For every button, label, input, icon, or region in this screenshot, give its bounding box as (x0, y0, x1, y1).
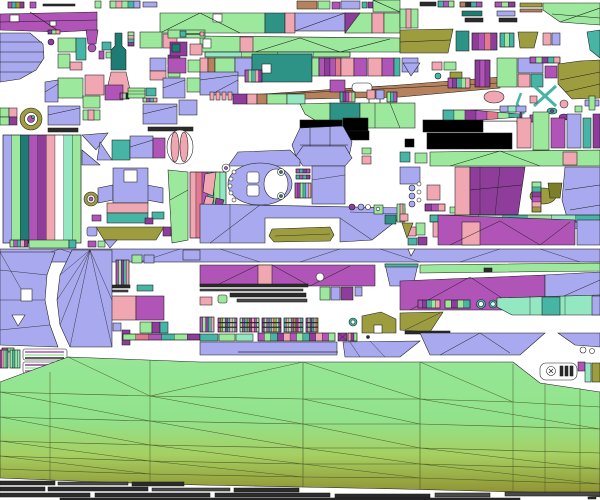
uv-island (88, 44, 96, 52)
uv-island (367, 336, 370, 339)
uv-stripe (235, 318, 237, 332)
uv-stripe (308, 183, 311, 198)
uv-stripe (425, 204, 432, 211)
uv-island (152, 322, 160, 333)
uv-stripe (16, 2, 20, 8)
uv-island (140, 32, 162, 48)
uv-stripe (495, 2, 502, 7)
uv-island (148, 127, 193, 131)
uv-stripe (10, 240, 14, 247)
uv-stripe (307, 175, 311, 179)
uv-island (110, 296, 136, 320)
uv-island (200, 284, 308, 287)
uv-island (0, 481, 55, 485)
uv-stripe (445, 300, 451, 308)
uv-stripe (46, 135, 55, 243)
uv-island (228, 184, 232, 188)
uv-island (30, 2, 36, 8)
uv-stripe (20, 135, 29, 243)
uv-island (341, 1, 360, 9)
uv-island (578, 362, 585, 371)
uv-island (354, 58, 367, 76)
uv-island (83, 96, 100, 108)
uv-island (113, 323, 121, 331)
uv-island (107, 213, 148, 223)
uv-stripe (291, 318, 293, 332)
uv-island (132, 255, 142, 263)
uv-island (406, 9, 411, 28)
uv-island (112, 140, 130, 160)
uv-island (58, 482, 128, 485)
uv-stripe (15, 350, 18, 368)
uv-island (499, 18, 517, 22)
uv-island (409, 201, 415, 207)
uv-island (367, 90, 375, 99)
uv-stripe (134, 1, 140, 8)
uv-stripe (119, 260, 122, 285)
uv-stripe (476, 110, 487, 121)
uv-island (358, 204, 364, 210)
uv-stripe (149, 334, 162, 340)
uv-island (497, 11, 515, 16)
uv-island (218, 295, 227, 303)
uv-stripe (136, 334, 149, 340)
uv-stripe (242, 318, 244, 332)
uv-canvas (0, 0, 600, 500)
uv-island (520, 9, 542, 12)
uv-stripe (461, 78, 465, 88)
uv-island (200, 265, 375, 286)
uv-stripe (464, 300, 470, 308)
uv-stripe (418, 300, 422, 308)
uv-island (48, 487, 148, 491)
uv-island (222, 92, 226, 100)
uv-island (355, 287, 362, 296)
uv-stripe (316, 318, 318, 332)
uv-island (230, 293, 306, 297)
uv-island (530, 96, 537, 103)
uv-island (236, 334, 253, 341)
uv-stripe (232, 318, 234, 332)
uv-island (200, 297, 212, 305)
uv-island (171, 132, 179, 162)
uv-stripe (122, 1, 128, 8)
uv-island (88, 241, 96, 247)
uv-stripe (14, 240, 18, 247)
uv-island (592, 296, 600, 315)
uv-stripe (336, 58, 342, 76)
uv-stripe (128, 1, 134, 8)
uv-island (484, 91, 504, 103)
uv-island (560, 366, 563, 376)
uv-island (462, 11, 482, 16)
uv-stripe (205, 52, 241, 57)
uv-stripe (211, 317, 214, 332)
uv-stripe (267, 318, 269, 332)
uv-island (518, 74, 530, 87)
uv-island (589, 96, 595, 110)
uv-island (409, 193, 415, 199)
uv-island (585, 363, 591, 382)
uv-stripe (438, 204, 445, 211)
uv-island (455, 167, 470, 217)
uv-island (146, 88, 156, 96)
uv-island (583, 118, 591, 148)
uv-stripe (530, 57, 536, 63)
uv-island (508, 106, 516, 112)
uv-stripe (124, 260, 127, 285)
uv-island (343, 118, 368, 131)
uv-stripe (276, 318, 278, 332)
uv-stripe (390, 92, 393, 102)
uv-island (86, 30, 98, 44)
uv-stripe (478, 33, 484, 50)
uv-stripe (502, 2, 509, 7)
uv-island (48, 128, 78, 132)
uv-island (567, 114, 581, 148)
uv-stripe (17, 240, 21, 247)
uv-stripe (264, 333, 270, 341)
uv-island (351, 320, 355, 324)
uv-stripe (322, 333, 328, 341)
uv-island (296, 146, 352, 166)
uv-stripe (509, 33, 514, 47)
uv-stripe (352, 92, 355, 102)
uv-stripe (120, 93, 123, 99)
uv-island (362, 2, 367, 8)
uv-island (432, 62, 442, 70)
uv-stripe (466, 2, 472, 7)
uv-island (219, 334, 235, 341)
uv-stripe (508, 2, 515, 7)
uv-stripe (314, 318, 316, 332)
uv-stripe (208, 317, 211, 332)
uv-island (384, 13, 400, 33)
uv-stripe (472, 33, 478, 50)
uv-island (48, 39, 54, 45)
uv-stripe (314, 52, 350, 57)
uv-stripe (277, 333, 283, 341)
uv-island (88, 110, 94, 120)
uv-island (287, 94, 305, 104)
uv-stripe (123, 93, 126, 99)
uv-stripe (303, 169, 307, 173)
uv-island (416, 223, 425, 235)
uv-stripe (466, 78, 470, 88)
uv-stripe (116, 1, 122, 8)
uv-island (9, 108, 17, 117)
uv-island (400, 167, 420, 184)
uv-island (533, 112, 549, 150)
uv-stripe (480, 60, 485, 87)
uv-stripe (206, 317, 209, 332)
uv-island (312, 166, 345, 204)
uv-stripe (387, 92, 390, 102)
uv-stripe (491, 33, 497, 50)
uv-island (592, 363, 600, 382)
uv-island (98, 241, 105, 247)
uv-island (382, 58, 394, 76)
uv-island (331, 287, 340, 300)
uv-stripe (252, 70, 255, 82)
uv-island (98, 185, 113, 203)
uv-island (577, 220, 600, 245)
uv-island (280, 195, 283, 198)
uv-island (153, 138, 165, 158)
uv-island (95, 1, 101, 8)
uv-stripe (269, 318, 271, 332)
uv-stripe (257, 318, 259, 332)
uv-stripe (316, 333, 322, 341)
uv-stripe (230, 318, 232, 332)
uv-stripe (325, 58, 331, 76)
uv-stripe (123, 334, 136, 340)
uv-stripe (128, 43, 134, 47)
uv-island (58, 78, 83, 98)
uv-island (137, 285, 153, 291)
uv-island (0, 357, 600, 497)
uv-stripe (422, 300, 426, 308)
uv-island (258, 265, 272, 286)
uv-island (415, 153, 427, 163)
uv-island (385, 264, 418, 267)
uv-stripe (289, 318, 291, 332)
uv-island (124, 170, 137, 182)
uv-island (570, 366, 573, 376)
uv-stripe (20, 2, 24, 8)
uv-island (21, 289, 32, 301)
uv-stripe (532, 202, 541, 207)
uv-island (0, 108, 9, 117)
uv-stripe (190, 172, 196, 238)
uv-stripe (240, 318, 242, 332)
uv-island (318, 1, 330, 9)
uv-island (366, 205, 371, 210)
uv-island (160, 322, 168, 333)
uv-stripe (143, 98, 147, 102)
uv-island (228, 92, 232, 100)
uv-island (262, 64, 271, 73)
uv-stripe (110, 1, 116, 8)
uv-stripe (247, 318, 249, 332)
uv-stripe (300, 175, 304, 179)
uv-stripe (471, 2, 477, 7)
uv-island (96, 227, 164, 240)
uv-island (374, 325, 382, 333)
uv-island (417, 182, 421, 186)
uv-island (408, 238, 417, 245)
uv-stripe (13, 350, 16, 368)
uv-island (0, 493, 90, 497)
uv-island (145, 218, 153, 224)
uv-island (10, 15, 19, 22)
uv-stripe (307, 169, 311, 173)
uv-island (548, 183, 562, 198)
uv-stripe (128, 36, 134, 40)
uv-island (580, 347, 586, 353)
uv-island (190, 44, 202, 55)
uv-island (50, 21, 56, 26)
uv-stripe (52, 30, 56, 34)
uv-island (320, 287, 330, 300)
uv-stripe (223, 318, 225, 332)
uv-stripe (301, 318, 303, 332)
uv-island (240, 37, 253, 52)
uv-stripe (38, 135, 47, 243)
uv-stripe (436, 300, 440, 308)
uv-island (210, 92, 214, 100)
uv-stripe (284, 333, 290, 341)
uv-island (183, 250, 200, 260)
uv-island (427, 185, 440, 200)
uv-island (213, 14, 222, 22)
uv-stripe (330, 58, 336, 76)
uv-stripe (431, 300, 435, 308)
uv-stripe (532, 182, 541, 187)
uv-island (247, 94, 257, 104)
uv-island (237, 299, 307, 302)
uv-stripe (297, 333, 303, 341)
uv-island (99, 51, 104, 59)
uv-island (368, 58, 382, 76)
uv-stripe (128, 32, 134, 36)
uv-island (341, 58, 354, 76)
uv-island (438, 215, 575, 245)
uv-island (297, 1, 317, 9)
uv-island (420, 263, 600, 273)
uv-island (349, 204, 355, 210)
uv-stripe (312, 318, 314, 332)
uv-island (417, 190, 421, 194)
uv-stripe (349, 92, 352, 102)
uv-island (543, 33, 551, 45)
uv-island (551, 110, 554, 113)
uv-island (269, 227, 334, 242)
uv-island (43, 4, 75, 6)
uv-stripe (300, 169, 304, 173)
uv-island (58, 38, 76, 52)
uv-island (423, 120, 483, 132)
uv-stripe (286, 318, 288, 332)
uv-stripe (12, 135, 21, 243)
uv-stripe (532, 197, 541, 202)
uv-island (107, 203, 148, 213)
uv-island (29, 240, 69, 248)
uv-stripe (10, 350, 13, 368)
uv-stripe (532, 192, 541, 197)
uv-island (341, 287, 353, 300)
uv-island (163, 227, 171, 236)
uv-island (87, 227, 97, 236)
uv-stripe (542, 57, 548, 63)
uv-stripe (162, 334, 175, 340)
uv-stripe (340, 92, 343, 102)
uv-island (233, 94, 247, 104)
uv-island (400, 152, 410, 162)
uv-island (152, 212, 164, 219)
uv-stripe (432, 204, 439, 211)
uv-stripe (303, 333, 309, 341)
uv-island (565, 366, 568, 376)
uv-stripe (121, 260, 124, 285)
uv-stripe (21, 240, 25, 247)
uv-stripe (0, 350, 2, 368)
uv-stripe (438, 1, 443, 7)
uv-island (225, 167, 228, 170)
uv-stripe (443, 1, 448, 7)
uv-island (136, 296, 164, 320)
uv-stripe (200, 317, 203, 332)
uv-stripe (64, 135, 73, 243)
uv-stripe (3, 135, 12, 243)
uv-island (95, 493, 210, 497)
uv-stripe (284, 318, 286, 332)
uv-stripe (554, 57, 560, 63)
uv-stripe (187, 334, 200, 340)
uv-stripe (310, 318, 312, 332)
uv-island (435, 73, 441, 79)
uv-island (172, 44, 180, 52)
uv-island (335, 494, 430, 498)
uv-stripe (150, 98, 154, 102)
uv-stripe (351, 333, 354, 341)
uv-island (200, 32, 204, 36)
uv-stripe (477, 2, 483, 7)
uv-island (70, 62, 82, 70)
uv-stripe (343, 92, 346, 102)
uv-stripe (264, 318, 266, 332)
uv-stripe (536, 57, 542, 63)
uv-island (143, 2, 157, 7)
uv-island (531, 74, 543, 87)
uv-island (560, 100, 568, 108)
uv-island (491, 302, 495, 306)
uv-island (234, 488, 299, 492)
uv-island (409, 185, 415, 191)
uv-island (229, 191, 233, 195)
uv-stripe (329, 333, 335, 341)
uv-island (385, 215, 396, 224)
uv-island (285, 13, 295, 33)
uv-island (130, 136, 153, 158)
uv-island (247, 172, 259, 183)
uv-island (563, 152, 577, 165)
uv-island (444, 62, 456, 70)
uv-island (405, 139, 414, 147)
uv-island (180, 132, 188, 162)
uv-stripe (500, 33, 505, 47)
uv-stripe (220, 318, 222, 332)
uv-island (257, 94, 267, 104)
uv-island (229, 177, 233, 181)
uv-island (394, 58, 400, 76)
uv-stripe (300, 183, 303, 198)
uv-stripe (18, 350, 21, 368)
uv-island (312, 58, 319, 76)
uv-stripe (55, 135, 64, 243)
uv-island (200, 289, 303, 291)
uv-stripe (532, 207, 541, 212)
uv-stripe (56, 30, 60, 34)
uv-stripe (126, 260, 129, 285)
uv-stripe (485, 33, 491, 50)
uv-island (450, 72, 462, 78)
uv-island (456, 31, 469, 51)
uv-island (215, 493, 330, 497)
uv-island (332, 2, 340, 9)
uv-island (152, 488, 230, 491)
uv-island (144, 255, 154, 263)
